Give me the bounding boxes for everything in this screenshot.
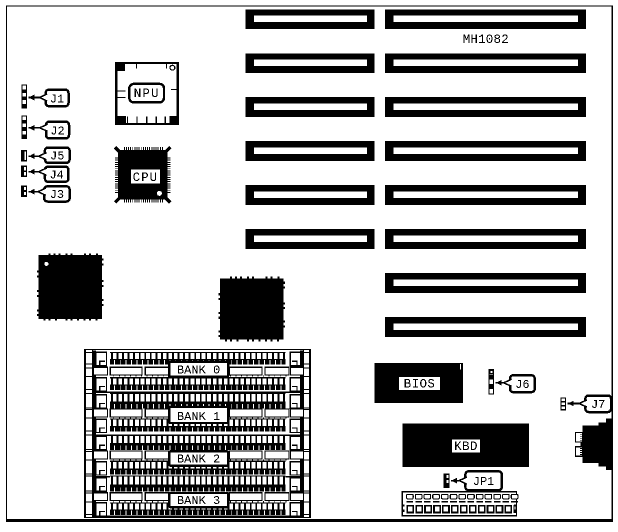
svg-text:J4: J4 (49, 169, 63, 183)
svg-text:J2: J2 (50, 124, 64, 138)
svg-text:CPU: CPU (133, 171, 159, 185)
svg-text:MH1082: MH1082 (463, 33, 509, 47)
svg-text:BANK 0: BANK 0 (177, 364, 220, 378)
svg-text:J3: J3 (50, 188, 64, 202)
svg-text:J1: J1 (50, 92, 64, 106)
svg-text:KBD: KBD (454, 440, 478, 454)
svg-text:J5: J5 (50, 149, 64, 163)
svg-text:JP1: JP1 (473, 475, 495, 489)
svg-text:NPU: NPU (134, 87, 160, 101)
svg-text:BANK 1: BANK 1 (177, 410, 220, 424)
svg-text:BANK 2: BANK 2 (177, 452, 220, 466)
svg-text:J6: J6 (515, 378, 529, 392)
svg-text:BIOS: BIOS (404, 378, 436, 392)
svg-text:BANK 3: BANK 3 (177, 494, 220, 508)
svg-text:J7: J7 (591, 398, 605, 412)
